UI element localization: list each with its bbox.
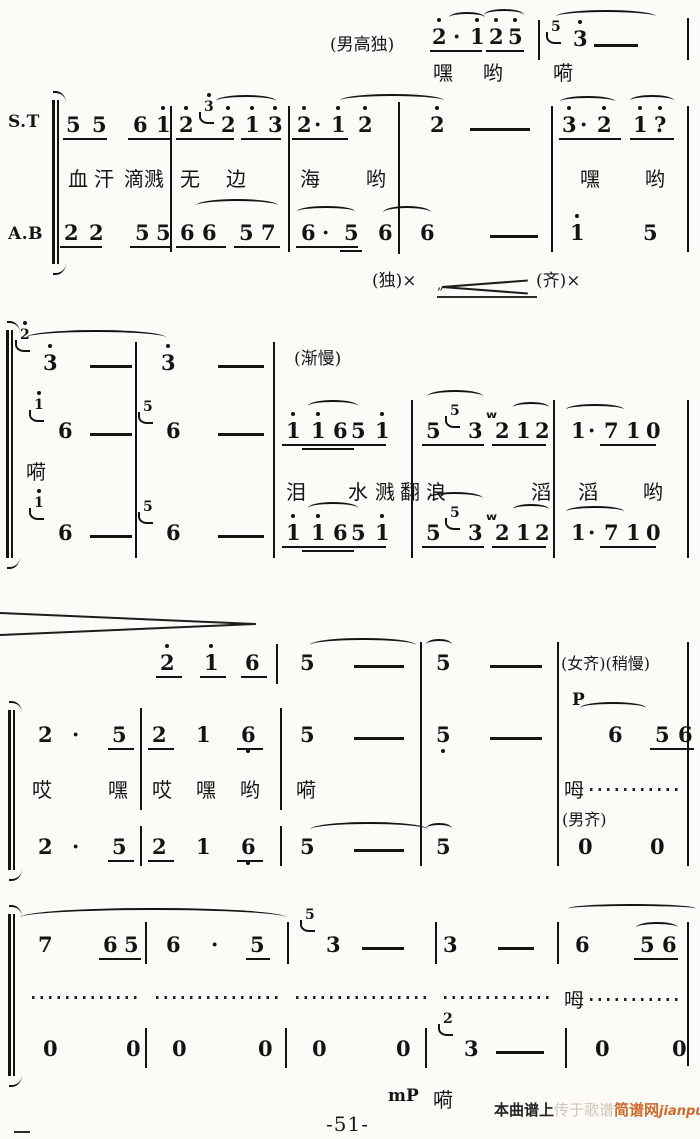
lyric-dotted-line [444, 996, 550, 999]
note-token: 7 [38, 934, 53, 955]
lyric: 哟 [483, 57, 503, 86]
dot-token: · [72, 724, 79, 745]
lyric: 嘿 [196, 774, 216, 803]
digit-glyph: 5 [300, 836, 315, 857]
digit-glyph: 1 [470, 26, 485, 47]
note-token: 2 [535, 522, 550, 543]
note-token: 2 [489, 26, 504, 47]
duration-dash [218, 433, 264, 436]
annotation-male-tutti: (男齐) [562, 806, 607, 830]
decrescendo-hairpin [0, 623, 256, 636]
note-token: 5 [92, 114, 107, 135]
note-token: 6 [333, 420, 348, 441]
digit-glyph: 6 [166, 934, 181, 955]
beam-underline [176, 138, 234, 140]
lyric: 哎 [32, 774, 52, 803]
barline [280, 826, 282, 866]
digit-glyph: 3 [468, 420, 483, 441]
digit-glyph: 6 [420, 222, 435, 243]
lyric: 哟 [240, 774, 260, 803]
slur [580, 702, 646, 714]
digit-glyph: 3 [464, 1038, 479, 1059]
note-token: 1 [331, 114, 346, 135]
digit-glyph: 1 [375, 522, 390, 543]
dot-token: · [72, 836, 79, 857]
beam-underline [63, 138, 107, 140]
note-token: 6 [378, 222, 393, 243]
digit-glyph: 7 [604, 522, 619, 543]
note-token: 6 [241, 836, 256, 857]
slur [636, 922, 678, 933]
note-token: 5 [436, 836, 451, 857]
barline [557, 642, 559, 866]
duration-dash [490, 665, 542, 668]
beam-underline [282, 444, 386, 446]
brace-stroke [9, 905, 22, 917]
rest-token: 0 [396, 1038, 411, 1059]
duration-dash [594, 44, 638, 47]
digit-glyph: 6 [301, 222, 316, 243]
brace-stroke [53, 263, 66, 275]
slur [449, 12, 485, 23]
grace-note: 1 [34, 398, 44, 412]
note-token: 1 [311, 522, 326, 543]
lyric: 滔 [578, 476, 598, 505]
digit-glyph: 6 [662, 934, 677, 955]
note-token: 5 [112, 724, 127, 745]
digit-glyph: 6 [241, 836, 256, 857]
lyric: 嗬 [296, 774, 316, 803]
digit-glyph: 5 [344, 222, 359, 243]
digit-glyph: 1 [311, 522, 326, 543]
system-brace [8, 914, 17, 1076]
digit-glyph: 7 [38, 934, 53, 955]
brace-stroke [52, 100, 55, 264]
beam-underline [492, 546, 546, 548]
digit-glyph: 1 [311, 420, 326, 441]
lyric: 哎 [152, 774, 172, 803]
octave-dot-above [316, 412, 320, 416]
note-token: 7 [604, 522, 619, 543]
beam-underline [246, 958, 270, 960]
note-token: 5 [250, 934, 265, 955]
note-token: 6 [103, 934, 118, 955]
digit-glyph: 2 [430, 114, 445, 135]
digit-glyph: 5 [426, 420, 441, 441]
beam-underline [422, 444, 484, 446]
note-token: 5 [124, 934, 139, 955]
barline [280, 708, 282, 810]
beam-underline [302, 448, 354, 450]
grace-hook [138, 512, 153, 524]
lyric: 呣 [564, 774, 584, 803]
beam-underline [60, 246, 102, 248]
digit-glyph: 2 [160, 652, 175, 673]
brace-stroke [11, 330, 13, 558]
barline [398, 102, 400, 254]
barline [135, 342, 137, 558]
note-token: 6 [166, 420, 181, 441]
dot-token: · [580, 114, 587, 135]
digit-glyph: 7 [261, 222, 276, 243]
digit-glyph: 2 [152, 724, 167, 745]
duration-dash [218, 535, 264, 538]
duration-dash [354, 849, 404, 852]
digit-glyph: 3 [326, 934, 341, 955]
beam-underline [422, 546, 484, 548]
digit-glyph: 5 [250, 934, 265, 955]
digit-glyph: 6 [678, 724, 693, 745]
beam-underline [650, 748, 694, 750]
octave-dot-above [575, 214, 579, 218]
slur [427, 390, 483, 403]
rule-line [437, 296, 537, 298]
octave-dot-above [209, 644, 213, 648]
slur [630, 95, 674, 106]
note-token: 3 [268, 114, 283, 135]
lyric: 边 [226, 163, 246, 192]
lyric: 水 [348, 476, 368, 505]
note-token: 6 [662, 934, 677, 955]
watermark-site: 简谱网 [614, 1101, 659, 1119]
beam-underline [492, 444, 546, 446]
beam-underline [156, 676, 182, 678]
digit-glyph: · [580, 114, 587, 135]
digit-glyph: 1 [375, 420, 390, 441]
duration-dash [470, 128, 530, 131]
barline [687, 400, 689, 558]
note-token: 6 [58, 420, 73, 441]
digit-glyph: 6 [58, 420, 73, 441]
lyric: 血汗 [68, 163, 120, 192]
digit-glyph: 6 [133, 114, 148, 135]
digit-glyph: 6 [608, 724, 623, 745]
note-token: 6 [245, 652, 260, 673]
digit-glyph: 6 [333, 420, 348, 441]
duration-dash [354, 737, 404, 740]
digit-glyph: 5 [300, 724, 315, 745]
lyric: 嘿 [580, 163, 600, 192]
brace-stroke [53, 91, 66, 103]
watermark: 本曲谱上传于歌谱简谱网jianpu.cn [494, 1099, 700, 1120]
digit-glyph: 1 [633, 114, 648, 135]
note-token: 3 [161, 352, 176, 373]
watermark-url: jianpu.cn [659, 1104, 700, 1119]
note-token: 6 [58, 522, 73, 543]
lyric: 哟 [366, 163, 386, 192]
beam-underline [237, 748, 263, 750]
barline [551, 106, 553, 252]
digit-glyph: 1 [570, 222, 585, 243]
note-token: 6 [333, 522, 348, 543]
dot-token: · [453, 26, 460, 47]
digit-glyph: 3 [562, 114, 577, 135]
grace-hook [138, 412, 153, 424]
system-brace [8, 710, 17, 870]
lyric: 嘿 [433, 57, 453, 86]
slur [310, 638, 416, 652]
barline [140, 708, 142, 810]
note-token: 1 [571, 522, 586, 543]
beam-underline [176, 246, 226, 248]
brace-stroke [8, 710, 11, 870]
digit-glyph: 1 [571, 522, 586, 543]
note-token: 6 [241, 724, 256, 745]
note-token: 1 [286, 522, 301, 543]
brace-stroke [13, 710, 15, 870]
note-token: 1 [196, 836, 211, 857]
note-token: 5 [436, 652, 451, 673]
note-token: 2 [535, 420, 550, 441]
octave-dot-above [291, 514, 295, 518]
barline [565, 1028, 567, 1068]
octave-dot-above [23, 321, 27, 325]
rest-token: 0 [312, 1038, 327, 1059]
digit-glyph: 1 [286, 420, 301, 441]
note-token: 6 [575, 934, 590, 955]
digit-glyph: 2 [64, 222, 79, 243]
lyric-dotted-line [32, 996, 142, 999]
dot-token: · [588, 420, 595, 441]
octave-dot-below [441, 749, 445, 753]
brace-stroke [6, 330, 9, 558]
note-token: 1 [196, 724, 211, 745]
note-token: 2 [495, 522, 510, 543]
digit-glyph: 6 [166, 420, 181, 441]
note-token: 1 [286, 420, 301, 441]
rest-token: 0 [258, 1038, 273, 1059]
note-token: 5 [239, 222, 254, 243]
grace-note: 5 [143, 500, 153, 514]
digit-glyph: 6 [378, 222, 393, 243]
beam-underline [600, 444, 656, 446]
beam-underline [296, 246, 358, 248]
note-token: 2 [38, 836, 53, 857]
slur [513, 402, 549, 412]
octave-dot-above [380, 514, 384, 518]
brace-stroke [57, 100, 59, 264]
digit-glyph: 2 [495, 522, 510, 543]
octave-dot-above [37, 489, 41, 493]
digit-glyph: 6 [575, 934, 590, 955]
beam-underline [630, 138, 674, 140]
digit-glyph: 3 [161, 352, 176, 373]
note-token: 5 [426, 420, 441, 441]
grace-hook [438, 1024, 453, 1036]
rest-token: 0 [650, 836, 665, 857]
grace-hook [445, 416, 460, 428]
duration-dash [354, 665, 404, 668]
digit-glyph: 5 [436, 836, 451, 857]
slur [297, 206, 355, 217]
digit-glyph: 5 [351, 522, 366, 543]
watermark-faint: 传于歌谱 [554, 1101, 614, 1119]
note-token: 2 [597, 114, 612, 135]
note-token: 5 [436, 724, 451, 745]
digit-glyph: 3 [268, 114, 283, 135]
rest-token: 0 [672, 1038, 687, 1059]
digit-glyph: 1 [196, 836, 211, 857]
barline [273, 342, 275, 558]
grace-note: 5 [143, 400, 153, 414]
grace-hook [445, 518, 460, 530]
note-token: 5 [156, 222, 171, 243]
duration-dash [90, 365, 132, 368]
beam-underline [237, 860, 263, 862]
note-token: 6 [202, 222, 217, 243]
lyric: 翻 [400, 476, 420, 505]
barline [435, 922, 437, 964]
octave-dot-above [291, 412, 295, 416]
note-token: 6 [166, 934, 181, 955]
digit-glyph: 1 [204, 652, 219, 673]
note-token: 7 [604, 420, 619, 441]
lyric: 嘿 [108, 774, 128, 803]
note-token: 2 [160, 652, 175, 673]
rest-token: 0 [126, 1038, 141, 1059]
octave-dot-above [161, 106, 165, 110]
grace-hook [199, 112, 214, 124]
note-token: 2 [152, 724, 167, 745]
slur [216, 95, 276, 107]
digit-glyph: 5 [92, 114, 107, 135]
digit-glyph: 1 [331, 114, 346, 135]
digit-glyph: · [72, 724, 79, 745]
digit-glyph: 6 [202, 222, 217, 243]
beam-underline [148, 748, 174, 750]
note-token: 6 [133, 114, 148, 135]
system-brace [52, 100, 61, 264]
digit-glyph: · [453, 26, 460, 47]
duration-dash [218, 365, 264, 368]
slur [310, 822, 428, 837]
digit-glyph: 0 [646, 420, 661, 441]
page-number: -51- [326, 1112, 369, 1136]
digit-glyph: 0 [312, 1038, 327, 1059]
digit-glyph: 1 [286, 522, 301, 543]
barline [145, 1028, 147, 1068]
note-token: 6 [420, 222, 435, 243]
slur [426, 823, 452, 834]
slur [484, 9, 524, 21]
barline [276, 644, 278, 684]
digit-glyph: 2 [597, 114, 612, 135]
octave-dot-above [166, 344, 170, 348]
slur [196, 199, 278, 212]
barline [687, 642, 689, 866]
sheet-page: (男高独)2·12553嘿哟嗬S.TA.B5561232132·1223·21?… [0, 0, 700, 1139]
beam-underline [128, 138, 170, 140]
lyric: 嗬 [553, 57, 573, 86]
digit-glyph: 0 [43, 1038, 58, 1059]
dot-token: · [314, 114, 321, 135]
digit-glyph: 0 [646, 522, 661, 543]
digit-glyph: 5 [640, 934, 655, 955]
digit-glyph: · [588, 522, 595, 543]
digit-glyph: 5 [436, 724, 451, 745]
lyric-dotted-line [590, 998, 682, 1001]
beam-underline [200, 676, 226, 678]
digit-glyph: 5 [426, 522, 441, 543]
lyric: 嗬 [433, 1084, 453, 1113]
slur [427, 492, 483, 505]
octave-dot-above [207, 93, 211, 97]
digit-glyph: 2 [535, 522, 550, 543]
dot-token: · [588, 522, 595, 543]
slur [568, 904, 696, 913]
note-token: 6 [166, 522, 181, 543]
digit-glyph: 0 [650, 836, 665, 857]
duration-dash [90, 433, 132, 436]
crescendo-hairpin [442, 286, 528, 294]
barline [553, 400, 555, 558]
barline [285, 1028, 287, 1068]
barline [687, 922, 689, 1066]
beam-underline [292, 138, 348, 140]
octave-dot-above [658, 106, 662, 110]
brace-stroke [9, 1075, 22, 1087]
note-token: 1 [311, 420, 326, 441]
digit-glyph: 1 [516, 522, 531, 543]
lyric: 无 [180, 163, 200, 192]
lyric: 滔 [531, 476, 551, 505]
brace-stroke [9, 869, 22, 881]
beam-underline [241, 676, 267, 678]
rest-token: 0 [578, 836, 593, 857]
note-token: 5 [344, 222, 359, 243]
digit-glyph: 1 [156, 114, 171, 135]
dot-token: · [322, 222, 329, 243]
voice-label-ab: A.B [8, 224, 43, 244]
grace-note: 3 [204, 100, 214, 114]
digit-glyph: 6 [58, 522, 73, 543]
note-token: 1 [375, 522, 390, 543]
digit-glyph: · [72, 836, 79, 857]
lyric: 滴溅 [124, 163, 164, 192]
digit-glyph: 5 [643, 222, 658, 243]
lyric-dotted-line [590, 788, 680, 791]
dot-token: · [211, 934, 218, 955]
digit-glyph: 6 [241, 724, 256, 745]
octave-dot-above [302, 106, 306, 110]
slur [383, 206, 431, 219]
digit-glyph: · [314, 114, 321, 135]
page-edge-mark [14, 1131, 30, 1133]
digit-glyph: 5 [300, 652, 315, 673]
note-token: 1 [633, 114, 648, 135]
lyric: 哟 [643, 476, 663, 505]
note-token: 5 [426, 522, 441, 543]
slur [340, 94, 444, 107]
note-token: 3 [573, 28, 588, 49]
brace-stroke [8, 914, 11, 1076]
note-token: 3 [443, 934, 458, 955]
lyric: 溅 [375, 476, 395, 505]
note-token: 6 [678, 724, 693, 745]
slur [26, 330, 166, 345]
lyric-dotted-line [296, 996, 428, 999]
grace-note: 5 [450, 506, 460, 520]
digit-glyph: 2 [89, 222, 104, 243]
octave-dot-above [165, 644, 169, 648]
octave-dot-above [380, 412, 384, 416]
beam-underline [302, 550, 354, 552]
digit-glyph: 5 [436, 652, 451, 673]
digit-glyph: 0 [578, 836, 593, 857]
note-token: 5 [351, 420, 366, 441]
digit-glyph: 0 [172, 1038, 187, 1059]
brace-stroke [9, 701, 22, 713]
